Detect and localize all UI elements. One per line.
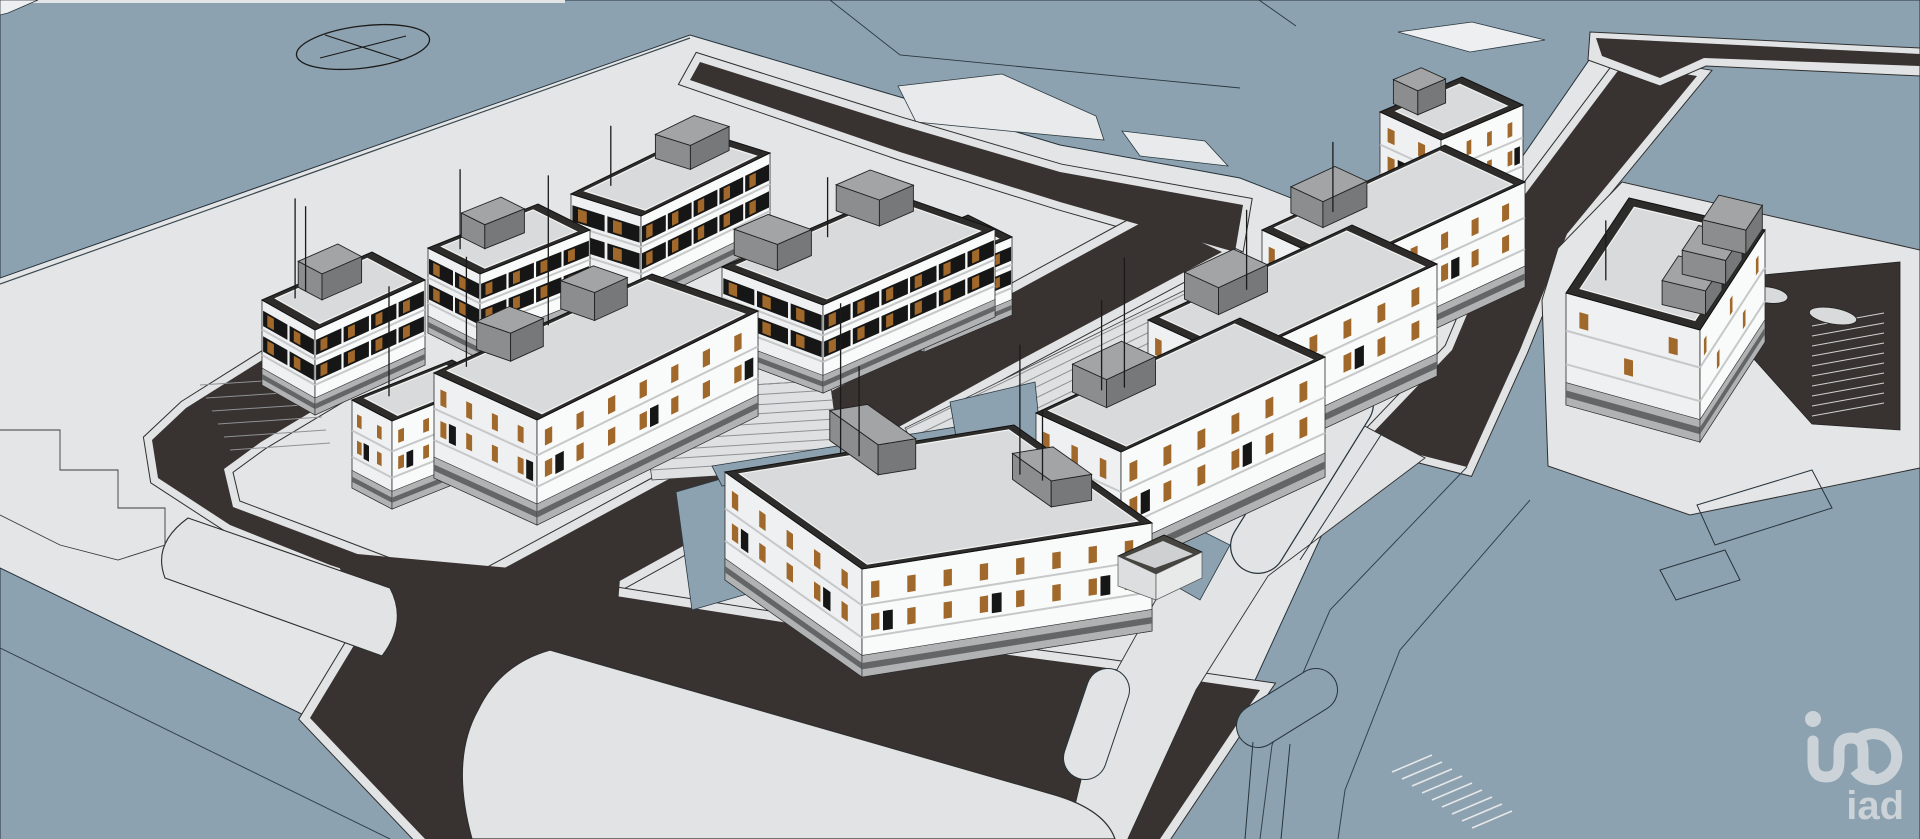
svg-text:iad: iad <box>1846 784 1904 828</box>
